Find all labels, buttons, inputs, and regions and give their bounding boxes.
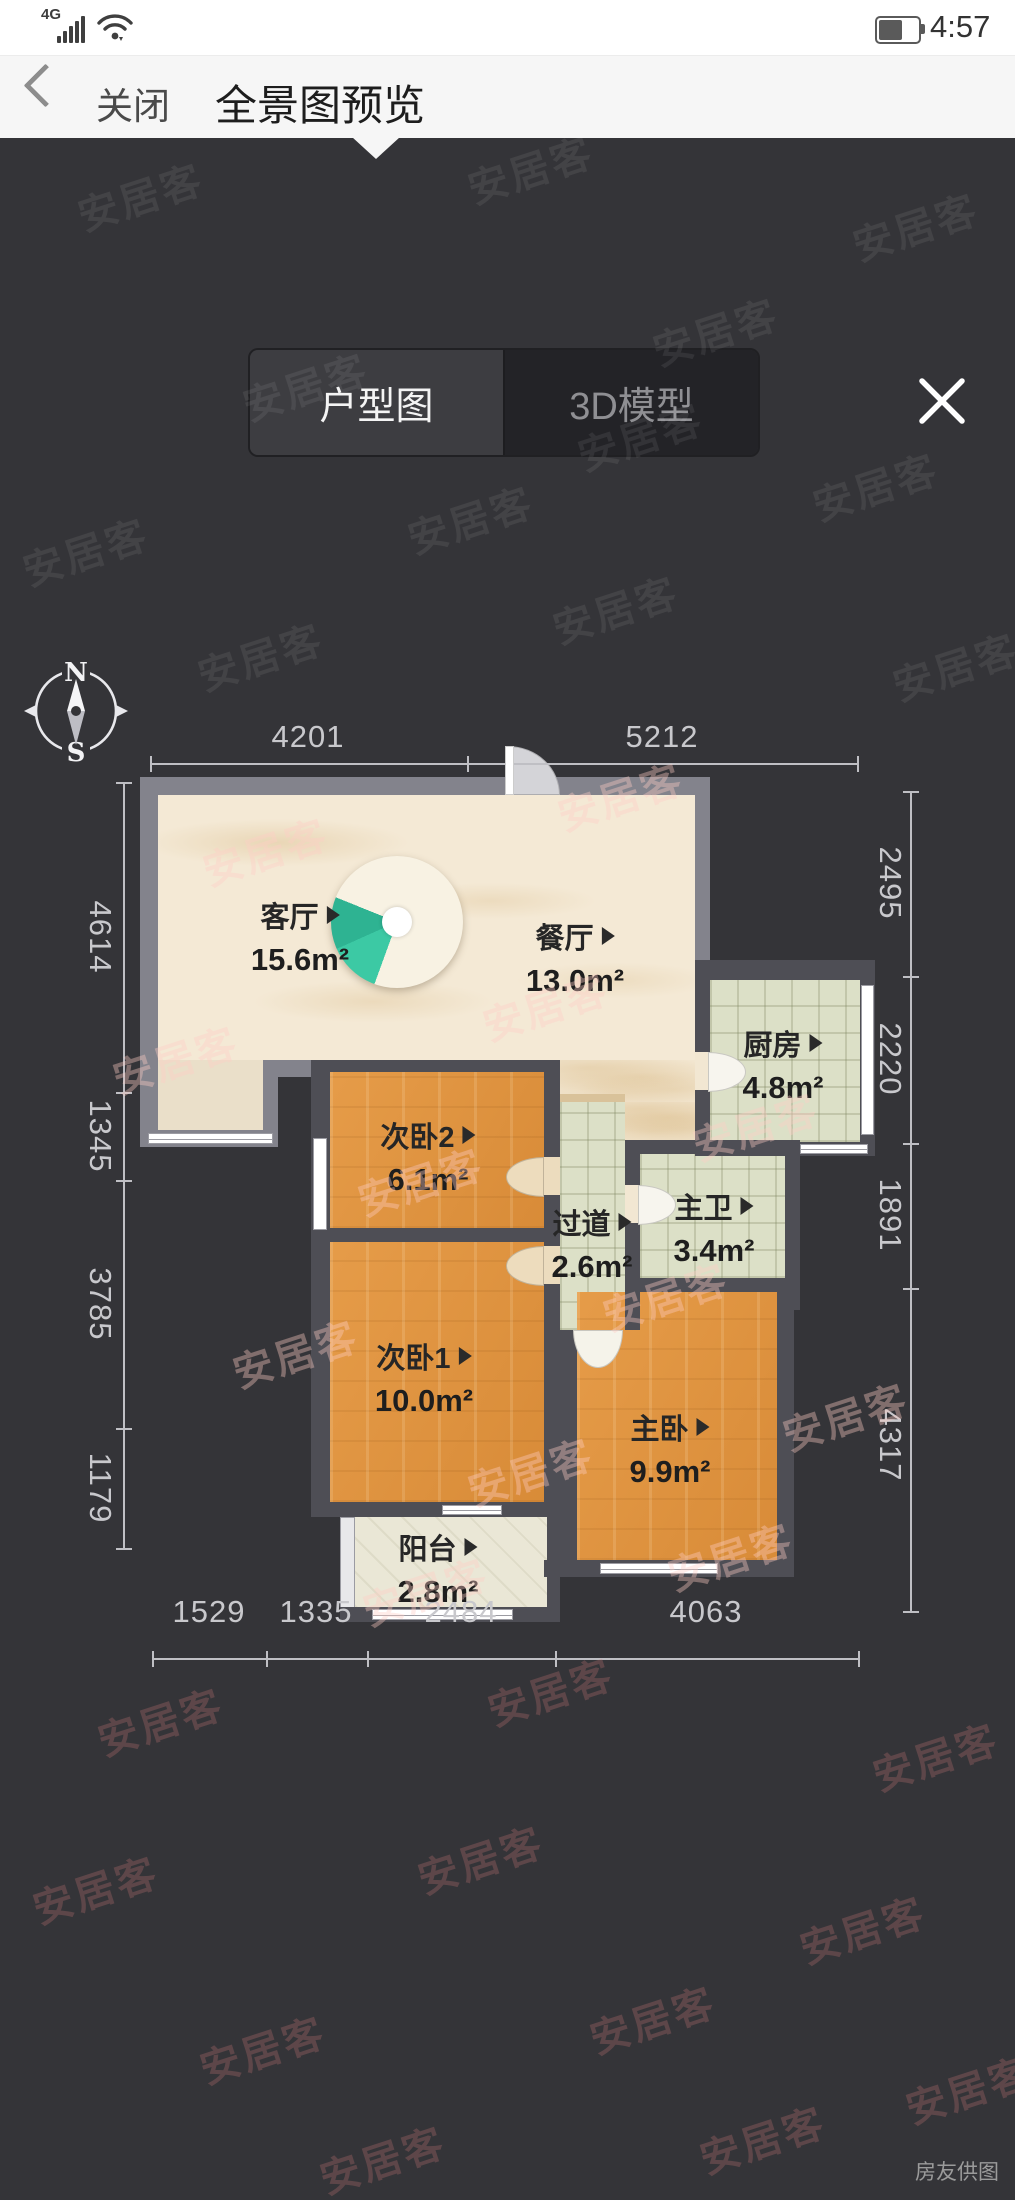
watermark: 安居客 bbox=[400, 470, 541, 565]
watermark: 安居客 bbox=[865, 1707, 1006, 1802]
watermark: 安居客 bbox=[692, 2090, 833, 2185]
room-label-bedroom1[interactable]: 次卧1 10.0m² bbox=[375, 1335, 473, 1419]
dim-right-3: 1891 bbox=[872, 1179, 908, 1252]
watermark: 安居客 bbox=[805, 437, 946, 532]
watermark: 安居客 bbox=[70, 147, 211, 242]
watermark: 安居客 bbox=[792, 1880, 933, 1975]
dimension-tick bbox=[266, 1651, 268, 1667]
watermark: 安居客 bbox=[410, 1810, 551, 1905]
dim-top-2: 5212 bbox=[626, 719, 699, 755]
screen: 4G 4:57 关闭 全景图预览 户型图 3D模型 bbox=[0, 0, 1015, 2200]
window bbox=[442, 1505, 502, 1515]
room-label-dining[interactable]: 餐厅 13.0m² bbox=[526, 915, 624, 999]
watermark: 安居客 bbox=[582, 1970, 723, 2065]
entry-door-leaf bbox=[505, 746, 514, 795]
status-time: 4:57 bbox=[930, 9, 990, 45]
wall bbox=[263, 1060, 311, 1077]
watermark: 安居客 bbox=[15, 502, 156, 597]
room-label-bedroom2[interactable]: 次卧2 6.1m² bbox=[380, 1114, 475, 1198]
watermark: 安居客 bbox=[898, 2040, 1015, 2135]
window bbox=[800, 1144, 868, 1154]
dim-bottom-2: 1335 bbox=[280, 1594, 353, 1630]
door-gap-bedroom2 bbox=[544, 1157, 560, 1195]
dimension-tick bbox=[858, 1651, 860, 1667]
dimension-line bbox=[150, 763, 857, 765]
wall bbox=[695, 960, 875, 980]
title-bar: 关闭 全景图预览 bbox=[0, 55, 1015, 138]
wall bbox=[311, 1060, 557, 1072]
room-label-kitchen[interactable]: 厨房 4.8m² bbox=[743, 1022, 824, 1106]
dim-left-4: 1179 bbox=[82, 1453, 118, 1524]
watermark: 安居客 bbox=[480, 1642, 621, 1737]
dimension-tick bbox=[903, 1611, 919, 1613]
watermark: 安居客 bbox=[845, 177, 986, 272]
dimension-tick bbox=[903, 791, 919, 793]
wall bbox=[311, 1060, 330, 1517]
compass-icon: N S bbox=[18, 653, 134, 769]
wall bbox=[140, 777, 158, 1147]
dimension-line bbox=[152, 1658, 858, 1660]
image-credit: 房友供图 bbox=[915, 2156, 999, 2186]
room-arrow-icon bbox=[327, 906, 340, 924]
wall bbox=[558, 1330, 577, 1577]
status-bar: 4G 4:57 bbox=[0, 0, 1015, 55]
room-arrow-icon bbox=[459, 1347, 472, 1365]
watermark: 安居客 bbox=[312, 2110, 453, 2200]
wall bbox=[311, 1502, 560, 1517]
dim-left-1: 4614 bbox=[82, 901, 118, 974]
dim-bottom-4: 4063 bbox=[670, 1594, 743, 1630]
floor-dining-lower2 bbox=[625, 1102, 695, 1140]
wall bbox=[695, 777, 710, 967]
dim-right-1: 2495 bbox=[872, 847, 908, 920]
room-arrow-icon bbox=[463, 1126, 476, 1144]
watermark: 安居客 bbox=[190, 607, 331, 702]
dimension-tick bbox=[857, 756, 859, 772]
tab-3d-model[interactable]: 3D模型 bbox=[503, 350, 758, 455]
window bbox=[148, 1133, 273, 1144]
wall bbox=[777, 1292, 794, 1577]
battery-icon bbox=[875, 16, 921, 44]
window bbox=[600, 1563, 718, 1574]
dim-left-2: 1345 bbox=[82, 1100, 118, 1173]
room-label-hallway[interactable]: 过道 2.6m² bbox=[552, 1201, 633, 1285]
room-arrow-icon bbox=[741, 1197, 754, 1215]
dim-left-3: 3785 bbox=[82, 1268, 118, 1341]
watermark: 安居客 bbox=[25, 1840, 166, 1935]
room-label-master-bedroom[interactable]: 主卧 9.9m² bbox=[630, 1406, 711, 1490]
dimension-tick bbox=[116, 1548, 132, 1550]
signal-strength-icon bbox=[57, 16, 91, 43]
dimension-tick bbox=[903, 976, 919, 978]
tab-floor-plan[interactable]: 户型图 bbox=[250, 350, 503, 455]
dimension-tick bbox=[903, 1143, 919, 1145]
watermark: 安居客 bbox=[885, 617, 1015, 712]
floor-entry-nook bbox=[158, 1060, 263, 1130]
dimension-tick bbox=[903, 1288, 919, 1290]
dimension-line bbox=[910, 791, 912, 1611]
dimension-line bbox=[123, 782, 125, 1548]
dimension-tick bbox=[555, 1651, 557, 1667]
dimension-tick bbox=[152, 1651, 154, 1667]
close-page-button[interactable]: 关闭 bbox=[96, 76, 170, 130]
room-label-living[interactable]: 客厅 15.6m² bbox=[251, 894, 349, 978]
room-arrow-icon bbox=[619, 1213, 632, 1231]
room-label-master-bath[interactable]: 主卫 3.4m² bbox=[674, 1185, 755, 1269]
wifi-icon bbox=[97, 12, 133, 47]
dimension-tick bbox=[150, 756, 152, 772]
dimension-tick bbox=[116, 1092, 132, 1094]
room-arrow-icon bbox=[697, 1418, 710, 1436]
close-icon[interactable] bbox=[916, 375, 968, 427]
back-chevron-icon[interactable] bbox=[24, 64, 68, 108]
view-mode-tabs: 户型图 3D模型 bbox=[248, 348, 760, 457]
wall bbox=[625, 1140, 800, 1154]
wall bbox=[311, 1228, 560, 1242]
header-pointer-notch bbox=[352, 137, 400, 159]
room-arrow-icon bbox=[465, 1538, 478, 1556]
room-label-balcony[interactable]: 阳台 2.8m² bbox=[398, 1526, 479, 1610]
wall bbox=[625, 1278, 800, 1292]
dimension-tick bbox=[116, 1428, 132, 1430]
watermark: 安居客 bbox=[192, 2000, 333, 2095]
room-arrow-icon bbox=[602, 927, 615, 945]
watermark: 安居客 bbox=[90, 1672, 231, 1767]
watermark: 安居客 bbox=[545, 560, 686, 655]
room-arrow-icon bbox=[810, 1034, 823, 1052]
entry-door-arc bbox=[508, 746, 560, 795]
window bbox=[313, 1138, 327, 1230]
living-room-decor-circle bbox=[331, 856, 463, 988]
dimension-tick bbox=[116, 782, 132, 784]
dim-bottom-1: 1529 bbox=[173, 1594, 246, 1630]
dim-right-4: 4317 bbox=[872, 1409, 908, 1482]
dimension-tick bbox=[116, 1180, 132, 1182]
dim-top-1: 4201 bbox=[272, 719, 345, 755]
dim-right-2: 2220 bbox=[872, 1023, 908, 1096]
wall bbox=[140, 777, 710, 795]
page-title: 全景图预览 bbox=[215, 72, 425, 133]
dimension-tick bbox=[367, 1651, 369, 1667]
dimension-tick bbox=[467, 756, 469, 772]
